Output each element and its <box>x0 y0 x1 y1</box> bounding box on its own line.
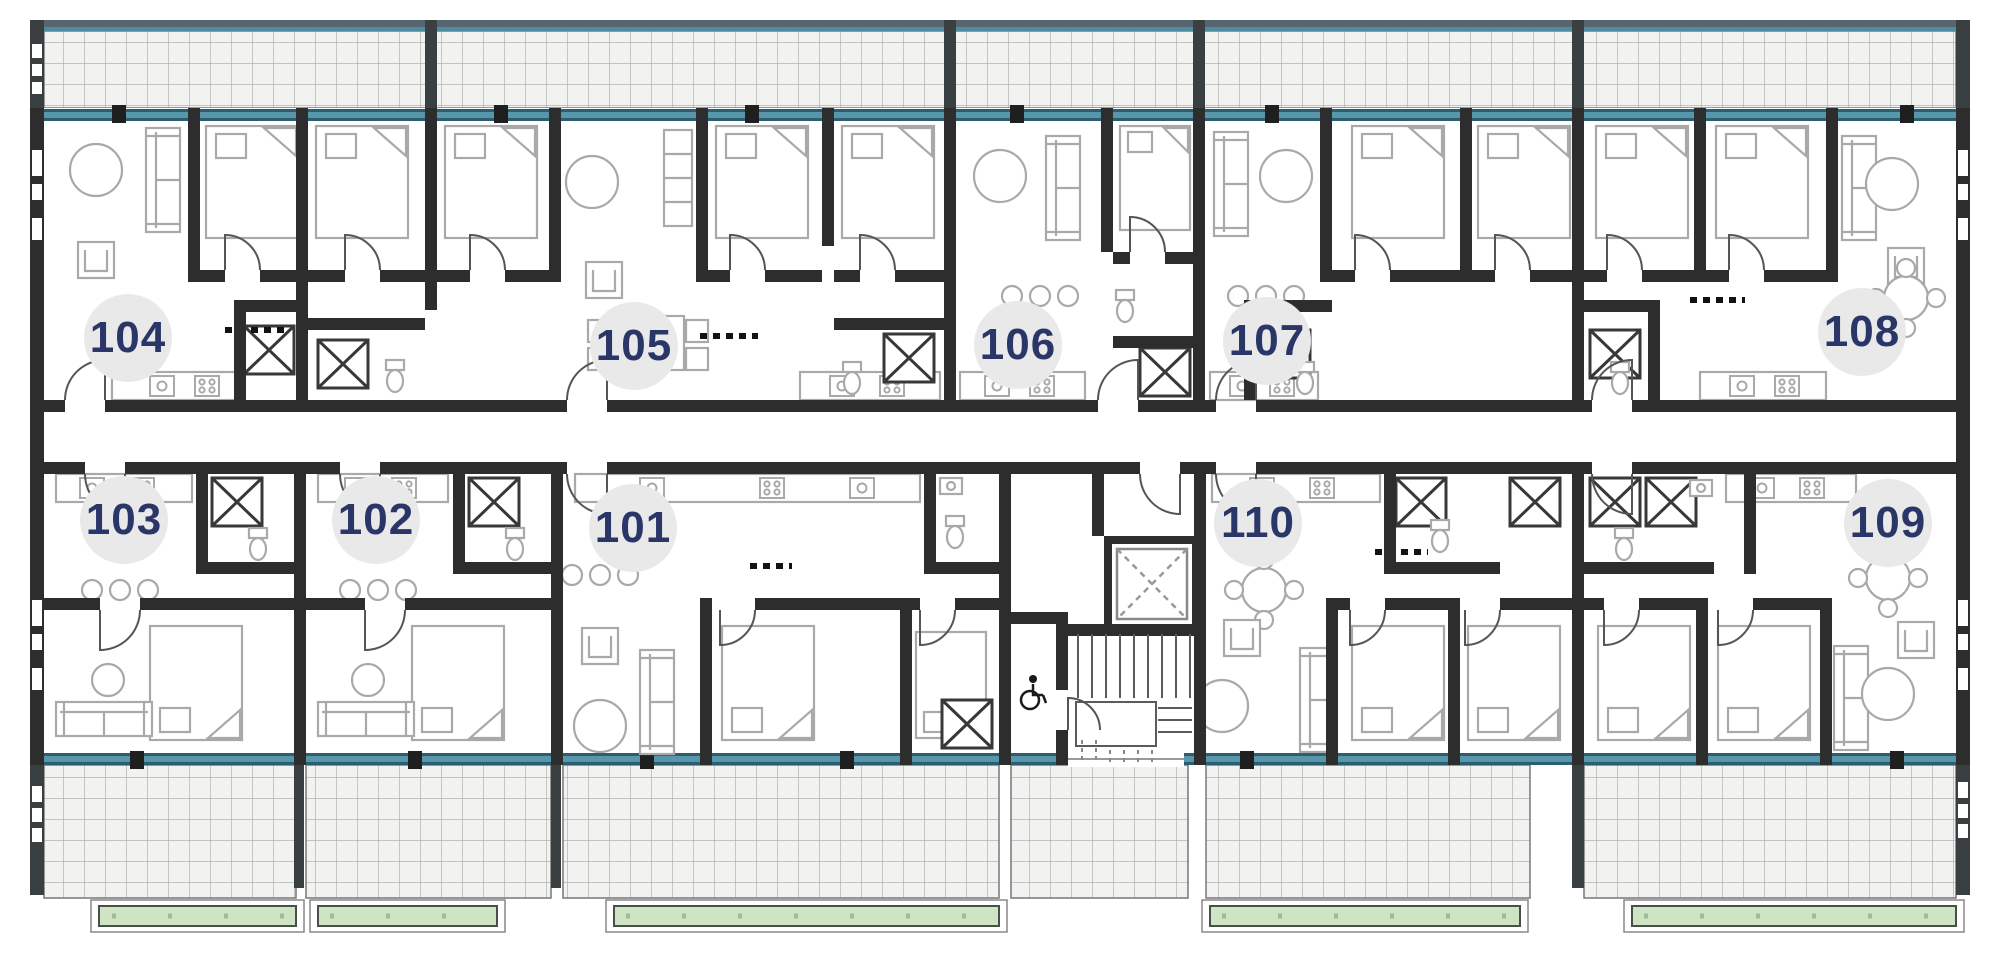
wardrobe-x-icon <box>1140 348 1190 396</box>
wardrobe-x-icon <box>942 700 992 748</box>
bed <box>842 126 934 238</box>
toilet <box>386 360 404 392</box>
window-band-top <box>44 109 1956 121</box>
round-table <box>70 144 122 196</box>
top-terrace <box>30 20 1970 108</box>
round-table <box>352 664 384 696</box>
round-table <box>974 150 1026 202</box>
wardrobe-x-icon <box>884 334 934 382</box>
round-table <box>1866 158 1918 210</box>
floor-plan: 104 105 106 107 108 103 102 101 110 109 <box>0 0 2000 963</box>
bed <box>1596 126 1688 238</box>
armchair <box>78 242 114 278</box>
bed <box>412 626 504 740</box>
wardrobe-x-icon <box>1510 478 1560 526</box>
sink <box>940 478 962 494</box>
bed <box>1120 126 1190 230</box>
bed <box>316 126 408 238</box>
terrace-railing <box>35 20 1956 27</box>
floor-plan-drawing <box>0 0 2000 963</box>
round-table <box>566 156 618 208</box>
sofa <box>1214 132 1248 236</box>
armchair <box>1224 620 1260 656</box>
toilet <box>946 516 964 548</box>
unit-label-106: 106 <box>974 301 1062 389</box>
sofa <box>146 128 180 232</box>
toilet <box>1116 290 1134 322</box>
sofa <box>56 702 152 736</box>
wardrobe-x-icon <box>1646 478 1696 526</box>
unit-label-103: 103 <box>80 476 168 564</box>
unit-label-104: 104 <box>84 294 172 382</box>
wardrobe-x-icon <box>469 478 519 526</box>
round-table <box>1260 150 1312 202</box>
bed <box>1716 126 1808 238</box>
dining-chairs <box>82 580 158 600</box>
wardrobe-x-icon <box>1396 478 1446 526</box>
bed <box>722 626 814 740</box>
armchair <box>586 262 622 298</box>
shelving <box>664 130 692 226</box>
toilet <box>249 528 267 560</box>
unit-label-108: 108 <box>1818 288 1906 376</box>
armchair <box>1898 622 1934 658</box>
bed <box>1478 126 1570 238</box>
toilet <box>1611 362 1629 394</box>
wardrobe-x-icon <box>244 326 294 374</box>
toilet <box>1615 528 1633 560</box>
sofa <box>640 650 674 754</box>
unit-label-101: 101 <box>589 484 677 572</box>
round-table <box>574 700 626 752</box>
entrance-walkway <box>1011 765 1188 898</box>
kitchen-counter <box>1700 372 1826 400</box>
toilet <box>843 362 861 394</box>
armchair <box>582 628 618 664</box>
dining-chairs <box>340 580 416 600</box>
unit-label-107: 107 <box>1223 297 1311 385</box>
unit-label-109: 109 <box>1844 479 1932 567</box>
bed <box>150 626 242 740</box>
bed <box>1468 626 1560 740</box>
sofa <box>318 702 414 736</box>
bed <box>716 126 808 238</box>
sofa <box>1046 136 1080 240</box>
unit-label-110: 110 <box>1214 479 1302 567</box>
green-planting-strips <box>91 900 1964 932</box>
round-table <box>92 664 124 696</box>
wardrobe-x-icon <box>318 340 368 388</box>
elevator-icon <box>1112 544 1192 624</box>
bottom-terraces <box>30 765 1970 932</box>
wardrobe-x-icon <box>212 478 262 526</box>
round-table <box>1862 668 1914 720</box>
toilet <box>1431 520 1449 552</box>
bed <box>1598 626 1690 740</box>
bed <box>445 126 537 238</box>
unit-label-105: 105 <box>590 302 678 390</box>
bed <box>1352 126 1444 238</box>
bed <box>206 126 298 238</box>
bed <box>1352 626 1444 740</box>
unit-label-102: 102 <box>332 476 420 564</box>
sink <box>1690 480 1712 496</box>
toilet <box>506 528 524 560</box>
